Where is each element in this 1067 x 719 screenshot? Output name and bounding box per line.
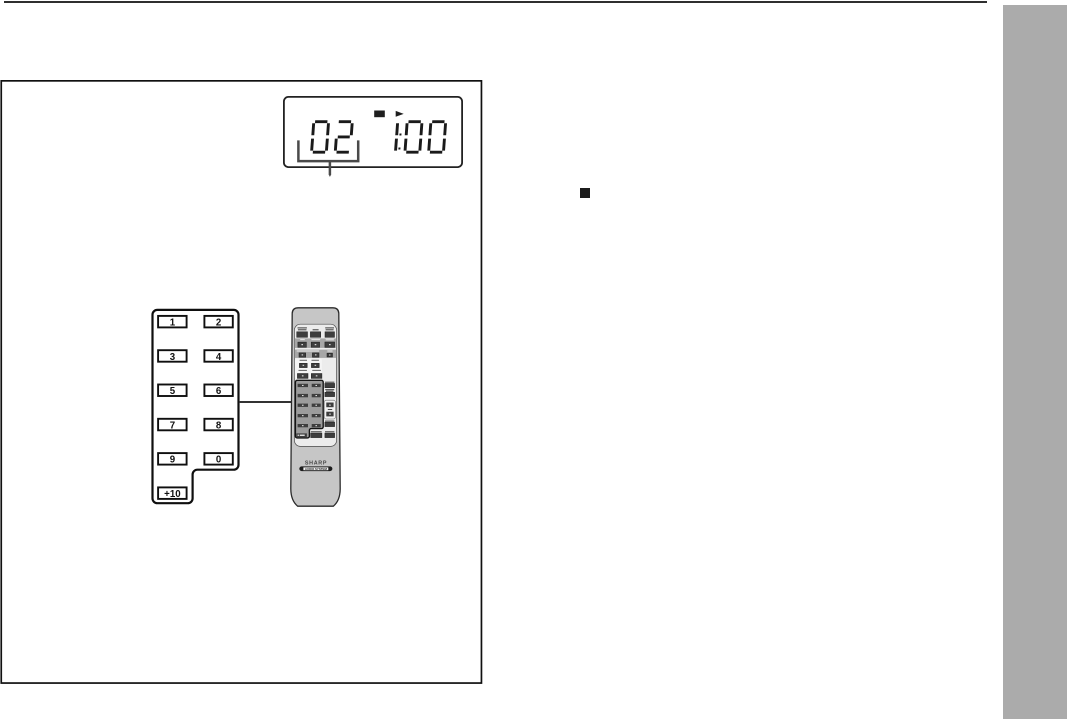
svg-text:4: 4 <box>216 352 222 363</box>
svg-text:8: 8 <box>216 420 222 431</box>
svg-text:AUDIO SYSTEM: AUDIO SYSTEM <box>305 467 328 471</box>
svg-text:7: 7 <box>170 420 175 431</box>
svg-text:6: 6 <box>216 386 222 397</box>
svg-text:9: 9 <box>170 455 176 466</box>
svg-text:1: 1 <box>170 318 176 329</box>
svg-text:2: 2 <box>216 318 221 329</box>
svg-text:3: 3 <box>170 352 176 363</box>
svg-text:SHARP: SHARP <box>305 461 327 467</box>
svg-text:0: 0 <box>216 455 221 466</box>
svg-text:+10: +10 <box>164 489 180 500</box>
svg-text:5: 5 <box>170 386 176 397</box>
